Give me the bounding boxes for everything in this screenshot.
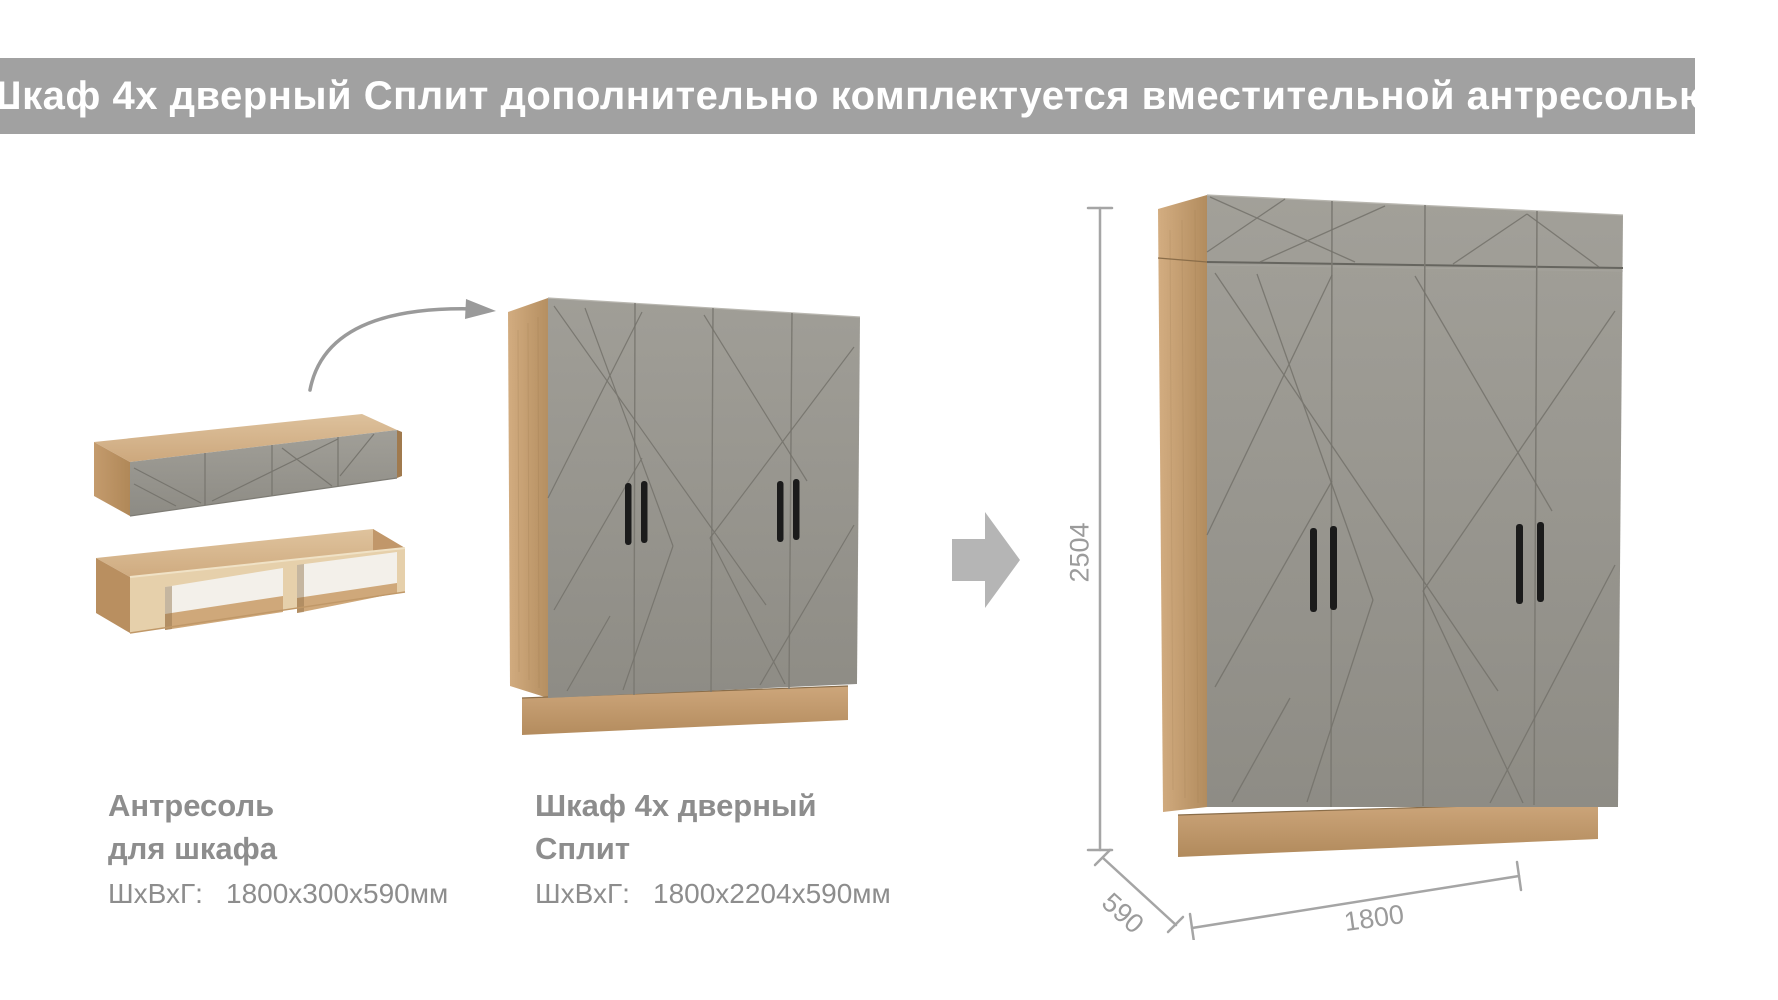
wardrobe-figure [505,290,867,742]
header-banner: Шкаф 4х дверный Сплит дополнительно комп… [0,58,1695,134]
product-dims-label: ШхВхГ: [108,878,226,910]
infographic-page: Шкаф 4х дверный Сплит дополнительно комп… [0,0,1778,1000]
curved-arrow-icon [298,294,502,398]
product-title-line2: Сплит [535,827,891,870]
product-dims-value: 1800х2204х590мм [653,878,891,910]
wardrobe-doors [548,298,860,698]
product-label-wardrobe: Шкаф 4х дверный Сплит ШхВхГ: 1800х2204х5… [535,784,891,910]
banner-text: Шкаф 4х дверный Сплит дополнительно комп… [0,74,1714,119]
antresol-closed-figure [86,404,406,526]
dimension-lines [1078,200,1538,940]
product-dims-value: 1800х300х590мм [226,878,448,910]
antresol-open-figure [88,526,418,640]
product-title-line2: для шкафа [108,827,448,870]
product-title-line1: Шкаф 4х дверный [535,784,891,827]
product-dims-label: ШхВхГ: [535,878,653,910]
right-arrow-icon [950,505,1024,611]
product-label-antresol: Антресоль для шкафа ШхВхГ: 1800х300х590м… [108,784,448,910]
product-title-line1: Антресоль [108,784,448,827]
dim-height-label: 2504 [1065,522,1096,582]
